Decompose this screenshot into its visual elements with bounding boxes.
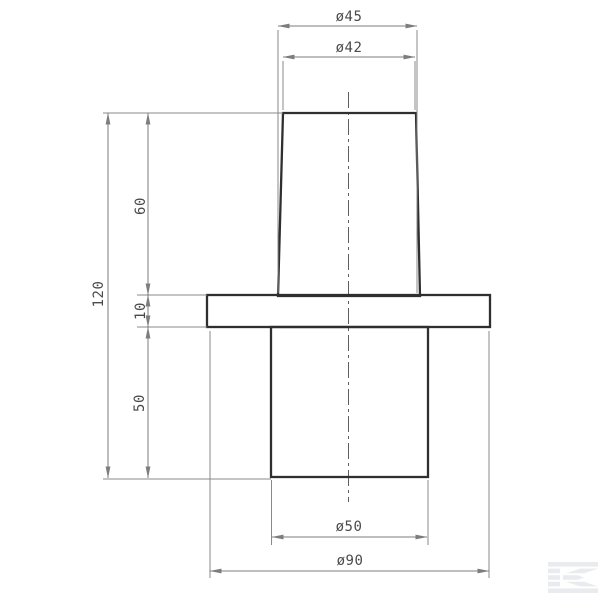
dimension-labels: ø45 ø42 120 60 10 50 ø50 ø90: [91, 9, 363, 569]
technical-drawing: ø45 ø42 120 60 10 50 ø50 ø90: [0, 0, 600, 600]
dim-label-cone-base-diameter: ø45: [336, 9, 363, 25]
dim-label-overall-height: 120: [91, 281, 107, 308]
spigot-outline: [271, 327, 428, 477]
dim-label-cone-top-diameter: ø42: [336, 40, 363, 56]
dim-label-spigot-height: 50: [132, 394, 148, 412]
dim-label-cone-height: 60: [133, 197, 149, 215]
drawing-sheet: ø45 ø42 120 60 10 50 ø50 ø90: [0, 0, 600, 600]
kramp-k-logo-icon: [548, 562, 598, 593]
dim-label-spigot-diameter: ø50: [336, 519, 363, 535]
dim-label-flange-diameter: ø90: [337, 553, 364, 569]
dim-label-flange-thickness: 10: [133, 302, 149, 320]
dimension-lines: [108, 26, 489, 571]
